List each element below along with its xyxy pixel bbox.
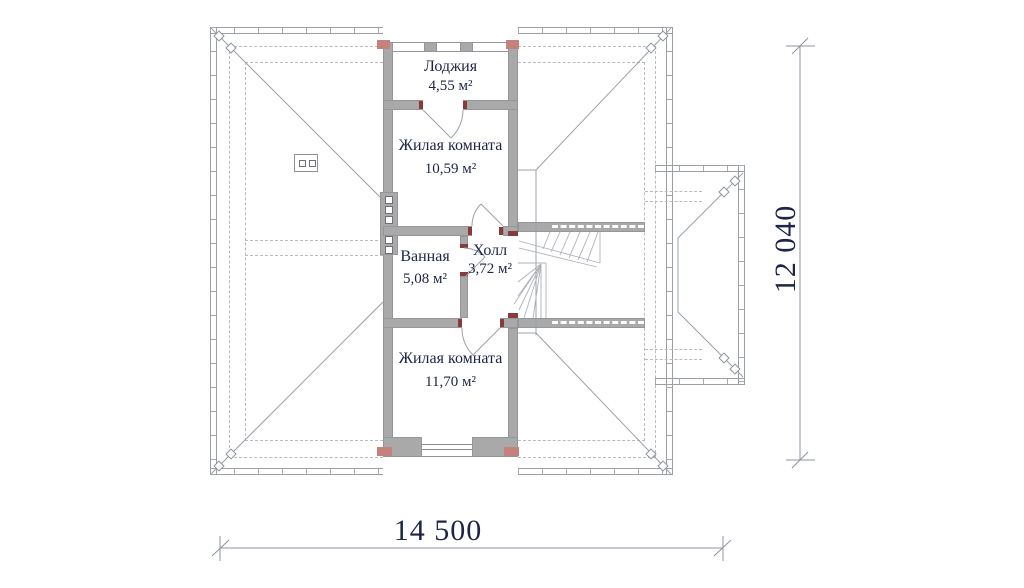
- door-jamb: [463, 101, 467, 109]
- room-area-hall: 3,72 м²: [458, 261, 522, 278]
- left-roof-eave-bottom: [210, 468, 383, 475]
- room-label-loggia: Лоджия: [385, 58, 516, 76]
- flue-duct: [385, 206, 393, 214]
- right-roof-wall-below-inner: [518, 62, 645, 441]
- bathroom-top-wall: [383, 226, 472, 236]
- flue-duct: [385, 216, 393, 224]
- bottom-window-glass-line: [422, 449, 472, 450]
- left-roof-hidden-wall-line: [245, 255, 383, 256]
- corner-mark: [377, 447, 392, 456]
- loggia-post: [460, 42, 473, 52]
- chimney-flue: [309, 160, 316, 167]
- stair-wall-hidden-edge: [552, 225, 644, 228]
- dimension-vertical-label: 12 040: [769, 169, 803, 329]
- bottom-window-glass-line: [422, 444, 472, 445]
- flue-duct: [385, 196, 393, 204]
- loggia-post: [424, 42, 437, 52]
- porch-eave-right: [738, 165, 745, 385]
- porch-hidden-wall-line: [645, 349, 702, 350]
- door-jamb: [419, 101, 423, 109]
- right-roof-eave-top: [518, 27, 673, 34]
- right-roof-eave-right: [666, 27, 673, 475]
- door-jamb: [468, 227, 472, 235]
- loggia-parapet: [393, 42, 508, 52]
- room-label-living-top: Жилая комната: [385, 137, 516, 155]
- porch-hip-lines: [678, 173, 743, 377]
- porch-hidden-wall-line: [645, 191, 702, 192]
- porch-eave-bottom: [655, 378, 745, 385]
- porch-hidden-wall-line: [645, 359, 702, 360]
- room-area-living-bottom: 11,70 м²: [385, 374, 516, 391]
- left-roof-wall-below-inner: [245, 62, 383, 441]
- hall-bottom-wall-left: [383, 318, 462, 328]
- chimney-flue: [299, 160, 306, 167]
- loggia-floor-wall-left: [383, 100, 423, 110]
- porch-eave-top: [655, 165, 745, 172]
- stair-opening-jamb: [508, 313, 518, 318]
- left-roof-eave-top: [210, 27, 383, 34]
- room-area-bathroom: 5,08 м²: [388, 271, 462, 288]
- right-roof-eave-bottom: [518, 468, 673, 475]
- dimension-horizontal-label: 14 500: [358, 514, 518, 547]
- room-label-bathroom: Ванная: [388, 248, 462, 266]
- room-label-hall: Холл: [460, 242, 520, 260]
- room-area-loggia: 4,55 м²: [385, 78, 516, 95]
- flue-duct: [385, 236, 393, 244]
- porch-hidden-wall-line: [645, 201, 702, 202]
- loggia-floor-wall-right: [463, 100, 518, 110]
- door-jamb: [499, 227, 503, 235]
- stair-wall-hidden-edge: [552, 321, 644, 324]
- left-roof-hidden-wall-line: [245, 240, 383, 241]
- door-jamb: [458, 319, 462, 327]
- room-label-living-bottom: Жилая комната: [385, 350, 516, 368]
- corner-mark: [504, 447, 519, 456]
- room-area-living-top: 10,59 м²: [385, 161, 516, 178]
- left-roof-eave-left: [210, 27, 217, 475]
- door-jamb: [500, 319, 504, 327]
- floor-plan: Лоджия 4,55 м² Жилая комната 10,59 м² Ва…: [0, 0, 1024, 588]
- corner-mark: [506, 40, 519, 49]
- chimney: [294, 154, 318, 172]
- corner-mark: [377, 40, 390, 49]
- stair-opening-jamb: [508, 231, 518, 236]
- bottom-window: [422, 437, 472, 457]
